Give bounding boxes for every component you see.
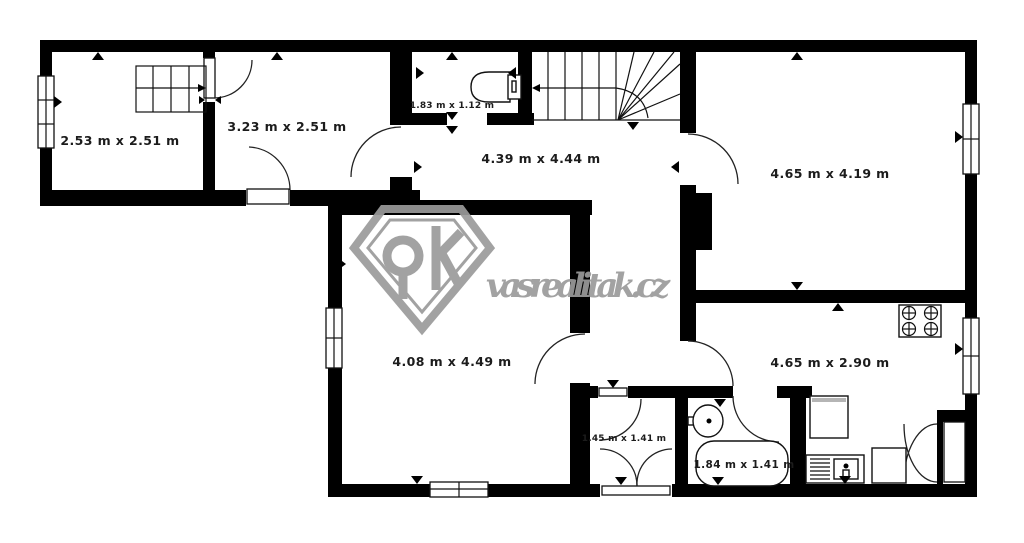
label-room-top-right: 4.65 m x 4.19 m (770, 166, 889, 181)
window-kitchen-right (963, 318, 979, 394)
gap-door-topright (680, 133, 696, 185)
door-arc-entrance (249, 147, 290, 190)
door-arc-vestibule-bottom-right (637, 449, 672, 486)
threshold-vestibule-bottom (602, 486, 670, 495)
stairs-down-arrow (532, 84, 540, 92)
door-arc-room1-room2 (214, 60, 252, 98)
door-arc-room408 (535, 334, 585, 384)
gap-door-room2-hall (390, 125, 412, 177)
wall-outer-top (40, 40, 977, 52)
wall-vestibule-bathroom (675, 398, 688, 486)
wall-alcove-thin (937, 410, 943, 484)
kitchen-cabinet-icon (872, 448, 906, 483)
kitchen-counter-icon (810, 396, 848, 438)
floor-plan-canvas: vasrealitak.cz 2.53 m x 2.51 m 3.23 m x … (0, 0, 1024, 543)
door-arc-alcove-b (904, 424, 937, 482)
diamond-ok-logo (354, 209, 490, 329)
stairs-winder (532, 52, 680, 130)
bathroom-sink-icon (688, 405, 723, 437)
alcove-recess (944, 422, 965, 482)
threshold-vestibule-top (599, 388, 627, 396)
label-room-bottom-left: 4.08 m x 4.49 m (392, 354, 511, 369)
label-vestibule: 1.45 m x 1.41 m (582, 434, 667, 444)
window-room1-left (38, 76, 54, 148)
label-room-top-middle: 3.23 m x 2.51 m (227, 119, 346, 134)
watermark-site-text: vasrealitak.cz (486, 266, 671, 306)
wall-center-notch (696, 193, 712, 250)
label-toilet: 1.83 m x 1.12 m (410, 101, 495, 111)
window-room408-left (326, 308, 342, 368)
stairs-straight (136, 66, 206, 112)
wall-bathroom-right (790, 398, 806, 486)
gap-door-bathroom (733, 386, 777, 398)
label-room-top-left: 2.53 m x 2.51 m (60, 133, 179, 148)
floor-plan: vasrealitak.cz 2.53 m x 2.51 m 3.23 m x … (0, 0, 1024, 543)
wall-center-mid (680, 185, 696, 341)
wall-topright-kitchen (696, 290, 965, 303)
label-bathroom: 1.84 m x 1.41 m (693, 459, 794, 471)
window-room408-bottom (430, 482, 488, 497)
stove-icon (899, 305, 941, 337)
door-arc-corridor-kitchen (688, 341, 733, 386)
kitchen-sink-icon (806, 455, 864, 483)
label-hall: 4.39 m x 4.44 m (481, 151, 600, 166)
door-arc-bathroom (733, 396, 779, 442)
label-kitchen: 4.65 m x 2.90 m (770, 355, 889, 370)
room-labels: 2.53 m x 2.51 m 3.23 m x 2.51 m 1.83 m x… (60, 101, 889, 471)
wall-center-upper (680, 52, 696, 133)
watermark: vasrealitak.cz (354, 209, 671, 329)
threshold-entrance (247, 189, 289, 204)
window-topright-right (963, 104, 979, 174)
